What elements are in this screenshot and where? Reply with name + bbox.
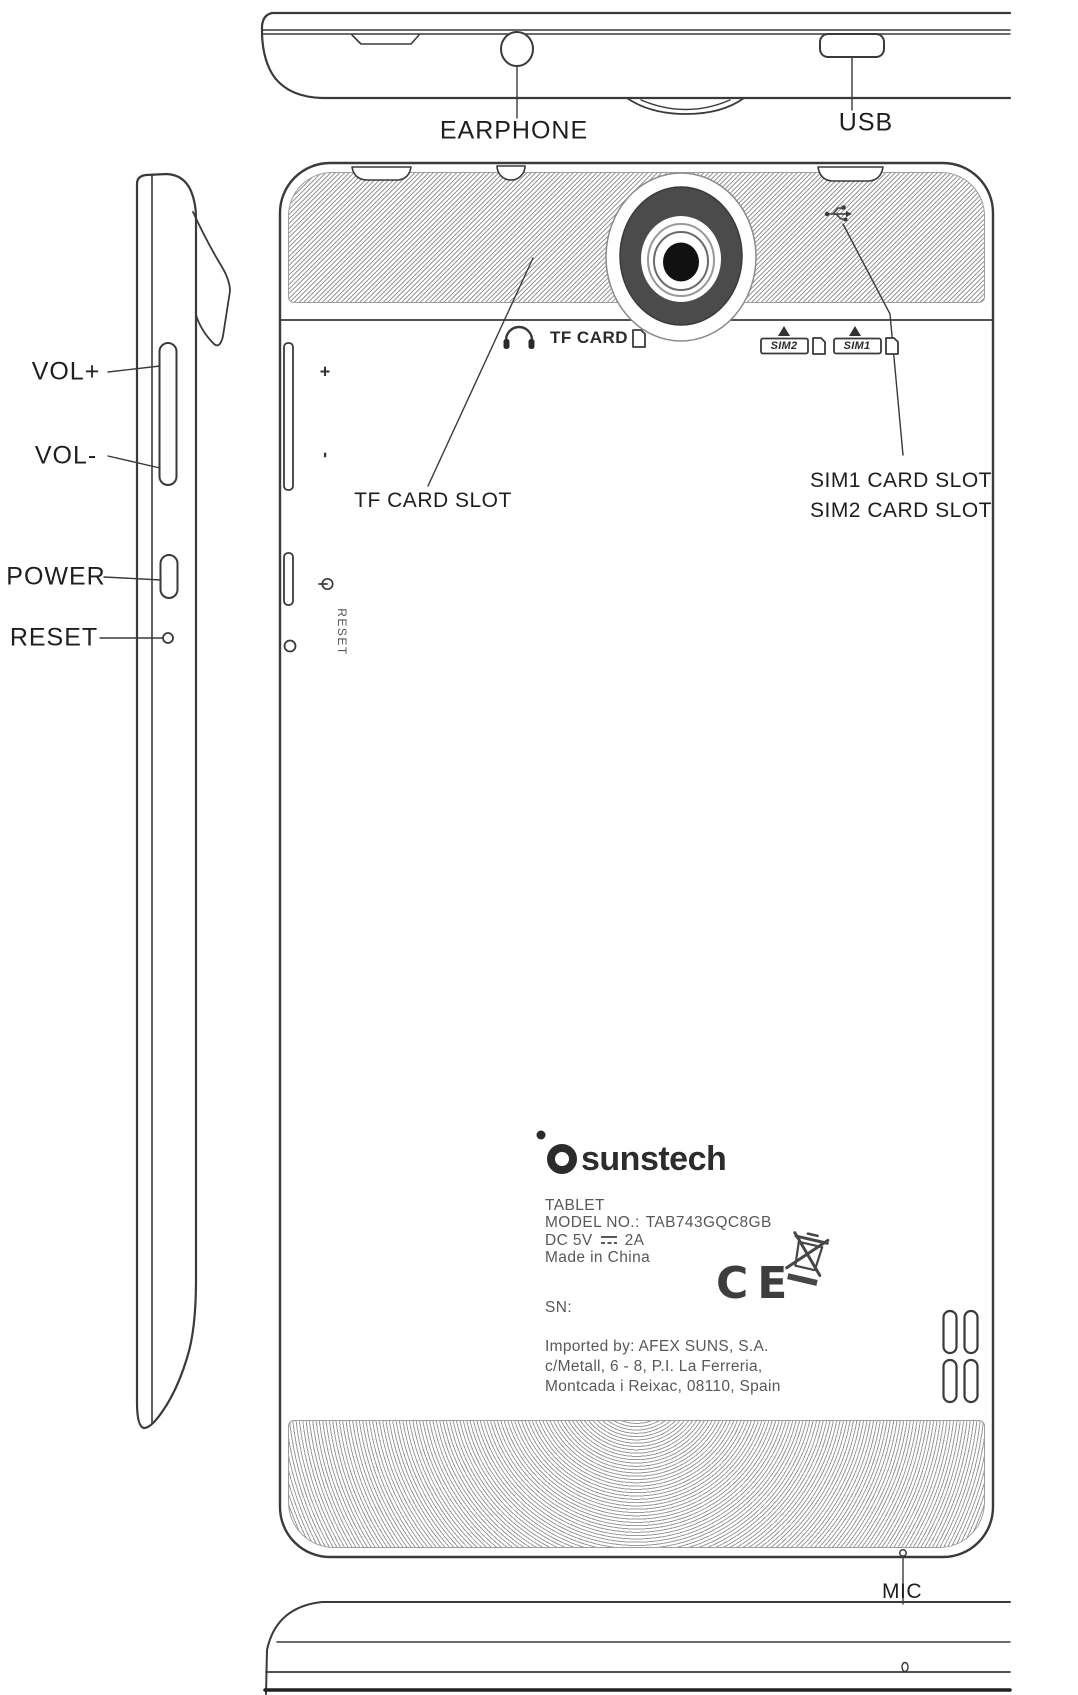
sim2-arrow-icon — [778, 326, 790, 336]
vol-plus-label: VOL+ — [32, 358, 101, 387]
usb-symbol-icon — [825, 206, 852, 222]
label-plate: TABLET MODEL NO.: TAB743GQC8GB DC 5V 2A … — [545, 1197, 772, 1266]
sim2-card-icon — [813, 338, 825, 354]
sunstech-logo-icon — [537, 1131, 574, 1171]
vol-minus-mark: - — [316, 452, 337, 458]
rear-camera — [606, 173, 756, 341]
top-center-notch — [497, 166, 525, 180]
usb-label: USB — [839, 109, 893, 138]
camera-bulge-profile — [193, 212, 230, 345]
vol-minus-label: VOL- — [35, 442, 97, 471]
camera-lens — [663, 243, 699, 282]
side-view — [100, 174, 230, 1428]
tf-card-icon — [633, 330, 645, 347]
usb-port — [820, 34, 884, 57]
speaker-grille — [944, 1311, 978, 1402]
power-label: POWER — [6, 563, 105, 592]
bottom-bump — [627, 98, 744, 114]
serial-label: SN: — [545, 1299, 572, 1317]
top-right-notch — [818, 167, 883, 181]
top-edge-view — [262, 13, 1010, 118]
reset-print-vertical: RESET — [335, 608, 349, 656]
sim2-print: SIM2 — [771, 340, 798, 352]
bottom-mic-hole — [902, 1663, 908, 1672]
earphone-label: EARPHONE — [440, 117, 588, 146]
brand-wordmark: sunstech — [581, 1140, 726, 1179]
dc-symbol-icon — [599, 1234, 619, 1246]
tf-card-slot-label: TF CARD SLOT — [354, 489, 512, 513]
earphone-jack — [501, 32, 533, 66]
sim1-arrow-icon — [849, 326, 861, 336]
device-line-art — [0, 0, 1078, 1695]
power-rating-suffix: 2A — [625, 1232, 645, 1249]
model-prefix: MODEL NO.: — [545, 1214, 640, 1231]
importer-line-3: Montcada i Reixac, 08110, Spain — [545, 1377, 781, 1397]
reset-hole-back — [285, 641, 296, 652]
headphone-icon — [504, 327, 535, 349]
sim1-print: SIM1 — [844, 340, 871, 352]
bottom-edge-view — [265, 1602, 1010, 1694]
power-symbol-icon — [319, 579, 333, 589]
power-button-side — [161, 555, 178, 598]
reset-hole-side — [163, 633, 173, 643]
power-rating-prefix: DC 5V — [545, 1232, 593, 1249]
volume-rocker-back — [284, 343, 293, 490]
top-notch — [352, 35, 419, 44]
sim1-card-icon — [886, 338, 898, 354]
mic-label: MIC — [882, 1580, 922, 1604]
importer-block: Imported by: AFEX SUNS, S.A. c/Metall, 6… — [545, 1337, 781, 1397]
tf-card-print: TF CARD — [550, 328, 628, 348]
product-type: TABLET — [545, 1197, 772, 1214]
importer-line-2: c/Metall, 6 - 8, P.I. La Ferreria, — [545, 1357, 781, 1377]
device-diagram-page: EARPHONE USB VOL+ VOL- POWER RESET TF CA… — [0, 0, 1078, 1695]
vol-plus-mark: + — [320, 362, 331, 383]
tf-slot-leader-line — [428, 258, 533, 486]
reset-label: RESET — [10, 624, 98, 653]
top-left-notch — [352, 167, 411, 180]
sim1-card-slot-label: SIM1 CARD SLOT — [810, 469, 992, 493]
mic-hole — [900, 1550, 906, 1556]
power-button-back — [284, 553, 293, 605]
sim2-card-slot-label: SIM2 CARD SLOT — [810, 499, 992, 523]
ce-mark: CE — [716, 1258, 796, 1309]
model-number: TAB743GQC8GB — [646, 1214, 772, 1231]
volume-rocker-side — [160, 343, 177, 485]
importer-line-1: Imported by: AFEX SUNS, S.A. — [545, 1337, 781, 1357]
